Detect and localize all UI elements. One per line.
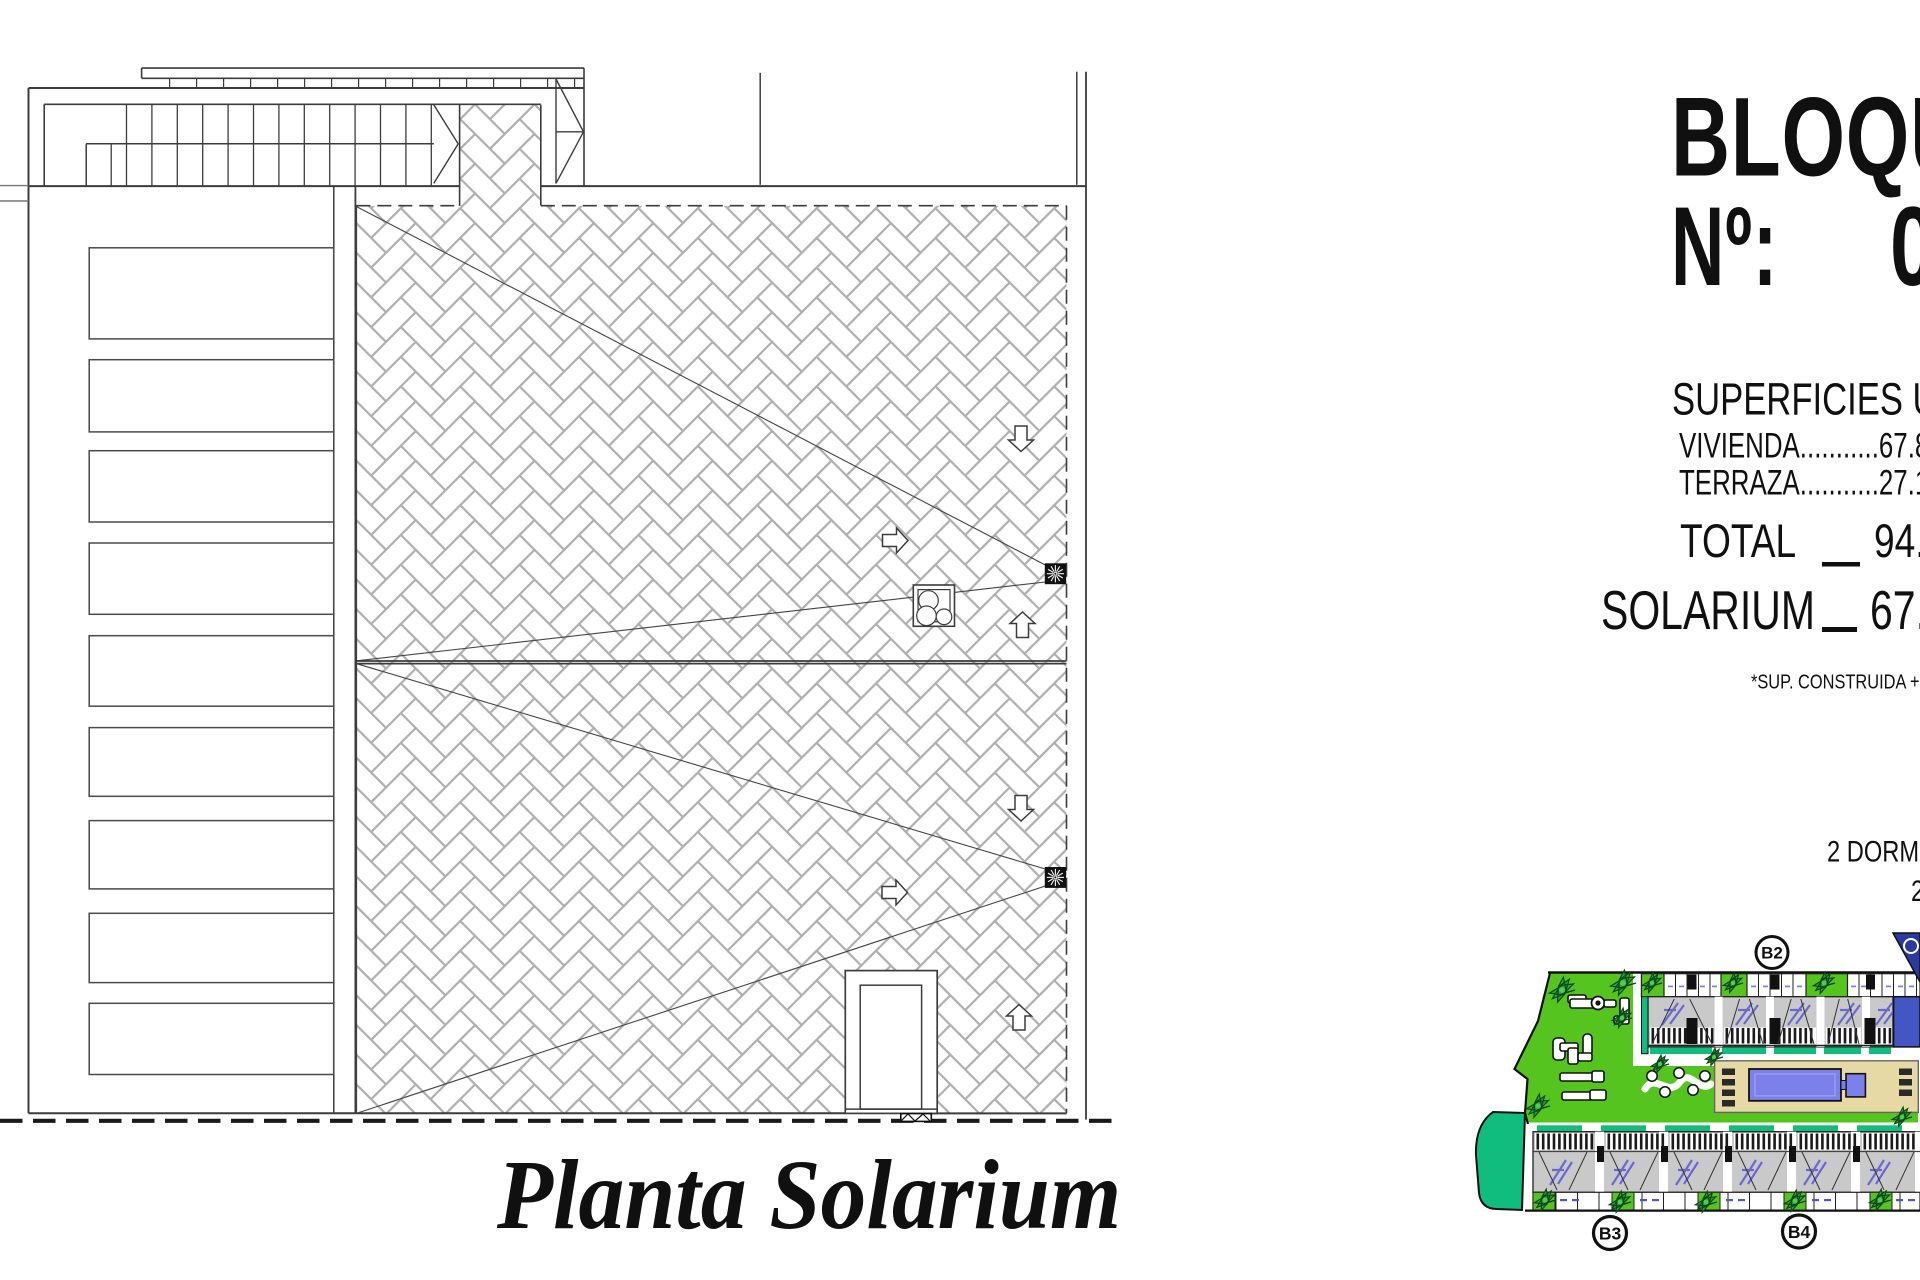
- svg-text:BLOQUE: BLOQUE: [1671, 74, 1920, 200]
- svg-text:TERRAZA...........27.10m: TERRAZA...........27.10m: [1679, 463, 1920, 503]
- svg-text:2 DORMITORIOS: 2 DORMITORIOS: [1827, 835, 1920, 868]
- svg-text:Planta Solarium: Planta Solarium: [496, 1139, 1121, 1249]
- svg-text:SOLARIUM: SOLARIUM: [1601, 580, 1815, 641]
- svg-text:VIVIENDA...........67.85m: VIVIENDA...........67.85m: [1679, 426, 1920, 466]
- svg-text:94.95: 94.95: [1874, 515, 1920, 567]
- svg-text:67.50: 67.50: [1870, 580, 1920, 641]
- svg-text:TOTAL: TOTAL: [1680, 515, 1796, 567]
- svg-text:02: 02: [1890, 183, 1920, 309]
- svg-text:2 BAÑOS: 2 BAÑOS: [1911, 873, 1920, 907]
- svg-text:*SUP. CONSTRUIDA + Z.COMUNES: *SUP. CONSTRUIDA + Z.COMUNES: [1751, 670, 1920, 693]
- svg-text:B2: B2: [1761, 944, 1783, 963]
- svg-text:B3: B3: [1599, 1224, 1622, 1244]
- svg-text:Nº:: Nº:: [1671, 185, 1778, 310]
- svg-text:B4: B4: [1788, 1222, 1811, 1242]
- svg-text:SUPERFICIES ÚTILES: SUPERFICIES ÚTILES: [1672, 374, 1920, 424]
